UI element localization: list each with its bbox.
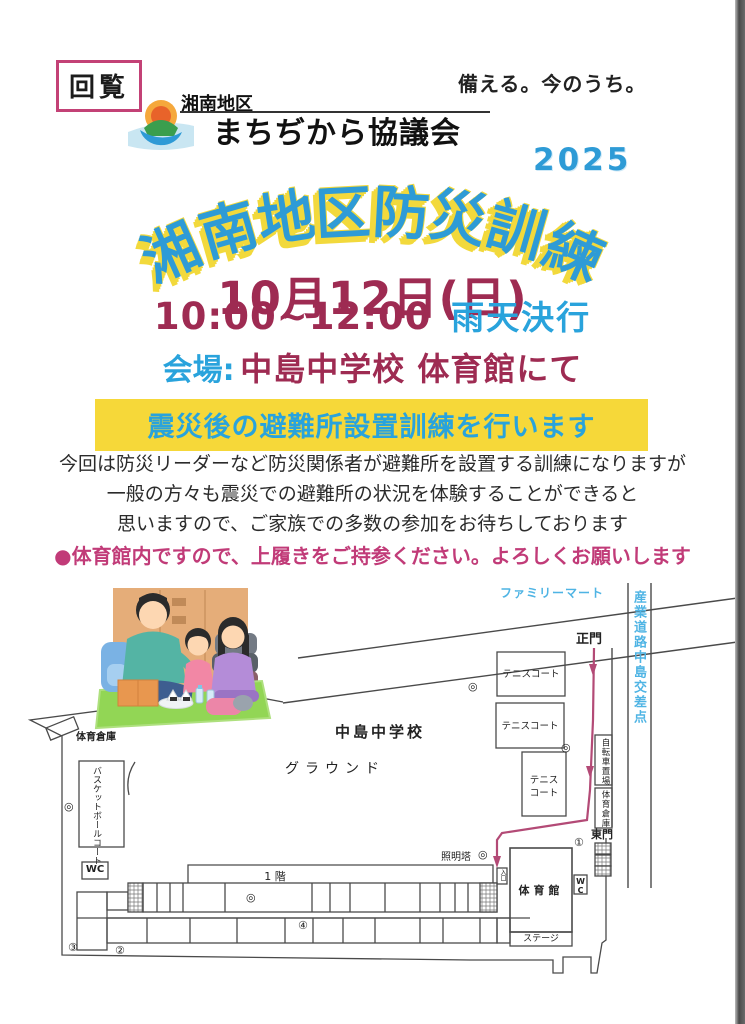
rain-or-shine-note: 雨天決行 xyxy=(451,298,591,337)
map-label-entrance: 入口 xyxy=(498,869,507,881)
route-arrow xyxy=(493,648,597,868)
map-label-main-gate: 正門 xyxy=(576,628,602,647)
map-label-wc-gym: WC xyxy=(576,877,585,895)
map-label-light-tower: 照明塔 xyxy=(441,848,471,863)
map-label-storage-left: 体育倉庫 xyxy=(76,728,116,743)
map-marker-1: ① xyxy=(574,836,584,849)
body-line-3: 思いますので、ご家族での多数の参加をお待ちしております xyxy=(0,509,745,539)
map-label-bicycle-parking: 自転車置場 xyxy=(599,738,611,786)
map-marker-circle-road: ◎ xyxy=(468,680,478,693)
venue-label: 会場: xyxy=(163,353,235,388)
venue-name: 中島中学校 体育館にて xyxy=(240,350,582,388)
map-marker-circle-left: ◎ xyxy=(64,800,74,813)
flyer-page: 回覧 備える。今のうち。 湘南地区 まちぢから協議会 2025 湘 南 地 区 … xyxy=(0,0,745,1024)
map-label-wc-left: WC xyxy=(82,864,108,875)
title-char: 区 xyxy=(313,167,374,252)
title-char: 防 xyxy=(371,167,432,252)
body-line-1: 今回は防災リーダーなど防災関係者が避難所を設置する訓練になりますが xyxy=(0,449,745,479)
event-title: 湘 南 地 区 防 災 訓 練 xyxy=(0,168,745,250)
map-label-tennis-court-2: テニスコート xyxy=(496,718,564,732)
map-label-stage: ステージ xyxy=(510,931,572,944)
map-label-tennis-court-1: テニスコート xyxy=(497,666,565,680)
map-marker-2: ② xyxy=(115,944,125,957)
map-marker-circle-tennis: ◎ xyxy=(561,741,571,754)
map-label-tennis-court-3-line2: コート xyxy=(522,785,566,799)
map-marker-circle-lighttower: ◎ xyxy=(478,848,488,861)
logo-org-text: まちぢから協議会 xyxy=(213,108,461,152)
map-label-industrial-road-intersection: 産業道路中島交差点 xyxy=(629,590,648,725)
indoor-shoes-note: ●体育館内ですので、上履きをご持参ください。よろしくお願いします xyxy=(0,540,745,569)
event-time-line: 10:00~12:00 雨天決行 xyxy=(0,291,745,339)
map-label-storage-right: 体育倉庫 xyxy=(599,790,611,828)
highlight-banner: 震災後の避難所設置訓練を行います xyxy=(95,399,648,451)
event-time: 10:00~12:00 xyxy=(154,295,432,338)
evacuation-family-illustration xyxy=(96,588,270,728)
body-paragraph: 今回は防災リーダーなど防災関係者が避難所を設置する訓練になりますが 一般の方々も… xyxy=(0,449,745,539)
map-marker-circle-building: ◎ xyxy=(246,891,256,904)
map-marker-4: ④ xyxy=(298,919,308,932)
map-label-familymart: ファミリーマート xyxy=(500,584,604,601)
map-marker-3: ③ xyxy=(68,941,78,954)
map-label-school-name: 中島中学校 xyxy=(300,721,460,742)
slogan-text: 備える。今のうち。 xyxy=(458,68,646,97)
map-label-east-gate: 東門 xyxy=(591,826,613,842)
title-char: 地 xyxy=(251,169,320,259)
map-label-basketball-court: バスケットボールコート xyxy=(88,766,103,843)
map-label-ground: グラウンド xyxy=(255,758,415,778)
map-label-tennis-court-3-line1: テニス xyxy=(522,772,566,786)
body-line-2: 一般の方々も震災での避難所の状況を体験することができると xyxy=(0,479,745,509)
venue-line: 会場: 中島中学校 体育館にて xyxy=(0,344,745,390)
map-label-first-floor: 1 階 xyxy=(245,868,305,884)
map-label-gymnasium: 体育館 xyxy=(510,882,572,898)
scan-edge xyxy=(735,0,745,1024)
